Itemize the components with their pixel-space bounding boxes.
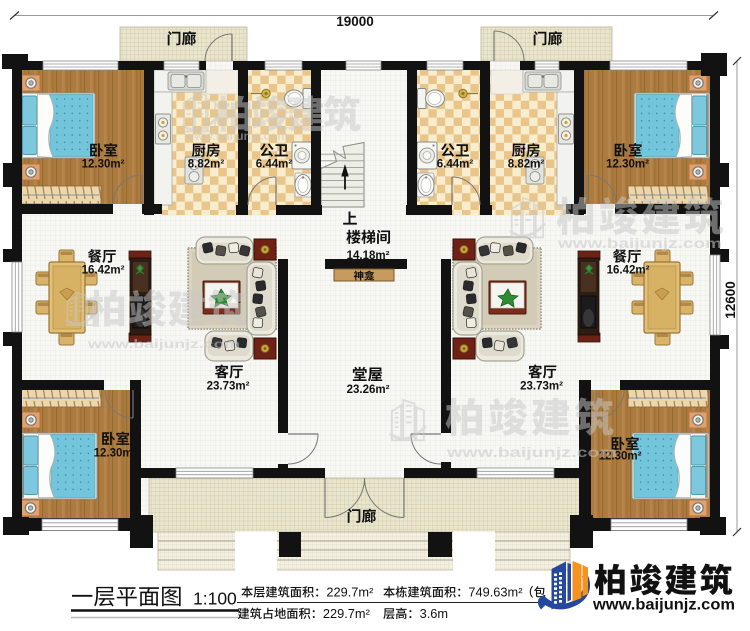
- svg-text:8.82m²: 8.82m²: [188, 159, 225, 171]
- svg-text:23.26m²: 23.26m²: [347, 384, 390, 396]
- svg-text:12.30m²: 12.30m²: [94, 448, 137, 460]
- svg-text:www.baijunjz.com: www.baijunjz.com: [557, 235, 722, 251]
- svg-text:12.30m²: 12.30m²: [606, 159, 649, 171]
- svg-text:3.6m: 3.6m: [420, 606, 448, 621]
- svg-text:www.baijunjz.com: www.baijunjz.com: [446, 444, 617, 460]
- svg-text:12600: 12600: [723, 281, 738, 319]
- svg-text:23.73m²: 23.73m²: [207, 381, 250, 393]
- svg-text:14.18m²: 14.18m²: [347, 250, 390, 262]
- svg-text:1:100: 1:100: [193, 589, 237, 609]
- svg-text:229.7m²: 229.7m²: [326, 585, 374, 600]
- svg-text:8.82m²: 8.82m²: [508, 159, 545, 171]
- svg-text:www.baijunjz.com: www.baijunjz.com: [184, 129, 288, 143]
- svg-text:16.42m²: 16.42m²: [607, 265, 650, 277]
- svg-text:749.63m²: 749.63m²: [468, 585, 523, 600]
- svg-text:6.44m²: 6.44m²: [437, 159, 474, 171]
- svg-text:229.7m²: 229.7m²: [323, 606, 371, 621]
- svg-text:12.30m²: 12.30m²: [82, 159, 125, 171]
- svg-text:19000: 19000: [336, 14, 374, 29]
- svg-text:www.baijunjz.com: www.baijunjz.com: [87, 337, 240, 351]
- svg-text:23.73m²: 23.73m²: [520, 381, 563, 393]
- svg-text:www.baijunjz.com: www.baijunjz.com: [592, 597, 735, 614]
- svg-text:6.44m²: 6.44m²: [256, 159, 293, 171]
- svg-text:16.42m²: 16.42m²: [82, 265, 125, 277]
